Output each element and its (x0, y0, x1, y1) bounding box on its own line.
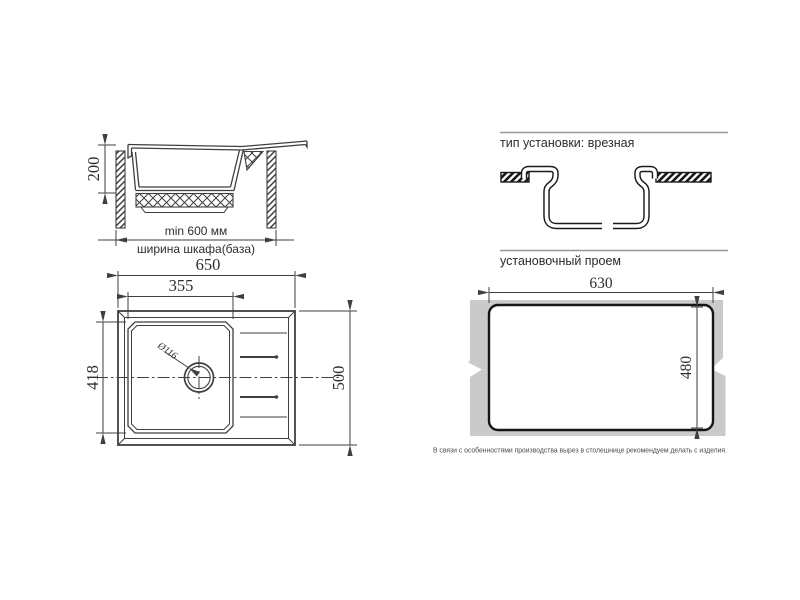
dimension-overall-width-650: 650 (118, 255, 295, 308)
dimension-depth-200: 200 (84, 145, 116, 193)
overall-depth-value: 500 (329, 366, 348, 391)
countertop-right-section (656, 173, 711, 183)
sink-specification-sheet: 200 min 600 мм ширина шкафа(база) (0, 0, 800, 600)
inset-mount-profile (524, 169, 655, 226)
cutout-width-value: 630 (589, 275, 613, 292)
depth-value: 200 (84, 157, 103, 182)
sink-bottom-hatch (136, 194, 233, 208)
installation-type-view: тип установки: врезная (500, 133, 728, 227)
overall-width-value: 650 (196, 255, 221, 274)
min-width-label: min 600 мм (165, 224, 228, 238)
sink-side-profile (128, 141, 307, 213)
side-section-view: 200 min 600 мм ширина шкафа(база) (84, 141, 307, 256)
cutout-opening-view: установочный проем 630 480 В связи с осо… (433, 251, 728, 455)
cabinet-right-wall (267, 151, 276, 228)
bowl-depth-value: 418 (83, 365, 102, 390)
top-view: Ø116 650 355 418 500 (83, 255, 357, 445)
installation-type-title: тип установки: врезная (500, 136, 634, 150)
deck-gusset (244, 152, 263, 171)
dimension-cabinet-width: min 600 мм ширина шкафа(база) (98, 224, 294, 256)
cutout-title: установочный проем (500, 254, 621, 268)
cabinet-width-label: ширина шкафа(база) (137, 242, 255, 256)
cabinet-left-wall (116, 151, 125, 228)
bowl-width-value: 355 (169, 276, 194, 295)
production-note: В связи с особенностями производства выр… (433, 446, 727, 455)
cutout-height-value: 480 (678, 356, 695, 380)
dimension-cutout-width-630: 630 (489, 275, 713, 303)
